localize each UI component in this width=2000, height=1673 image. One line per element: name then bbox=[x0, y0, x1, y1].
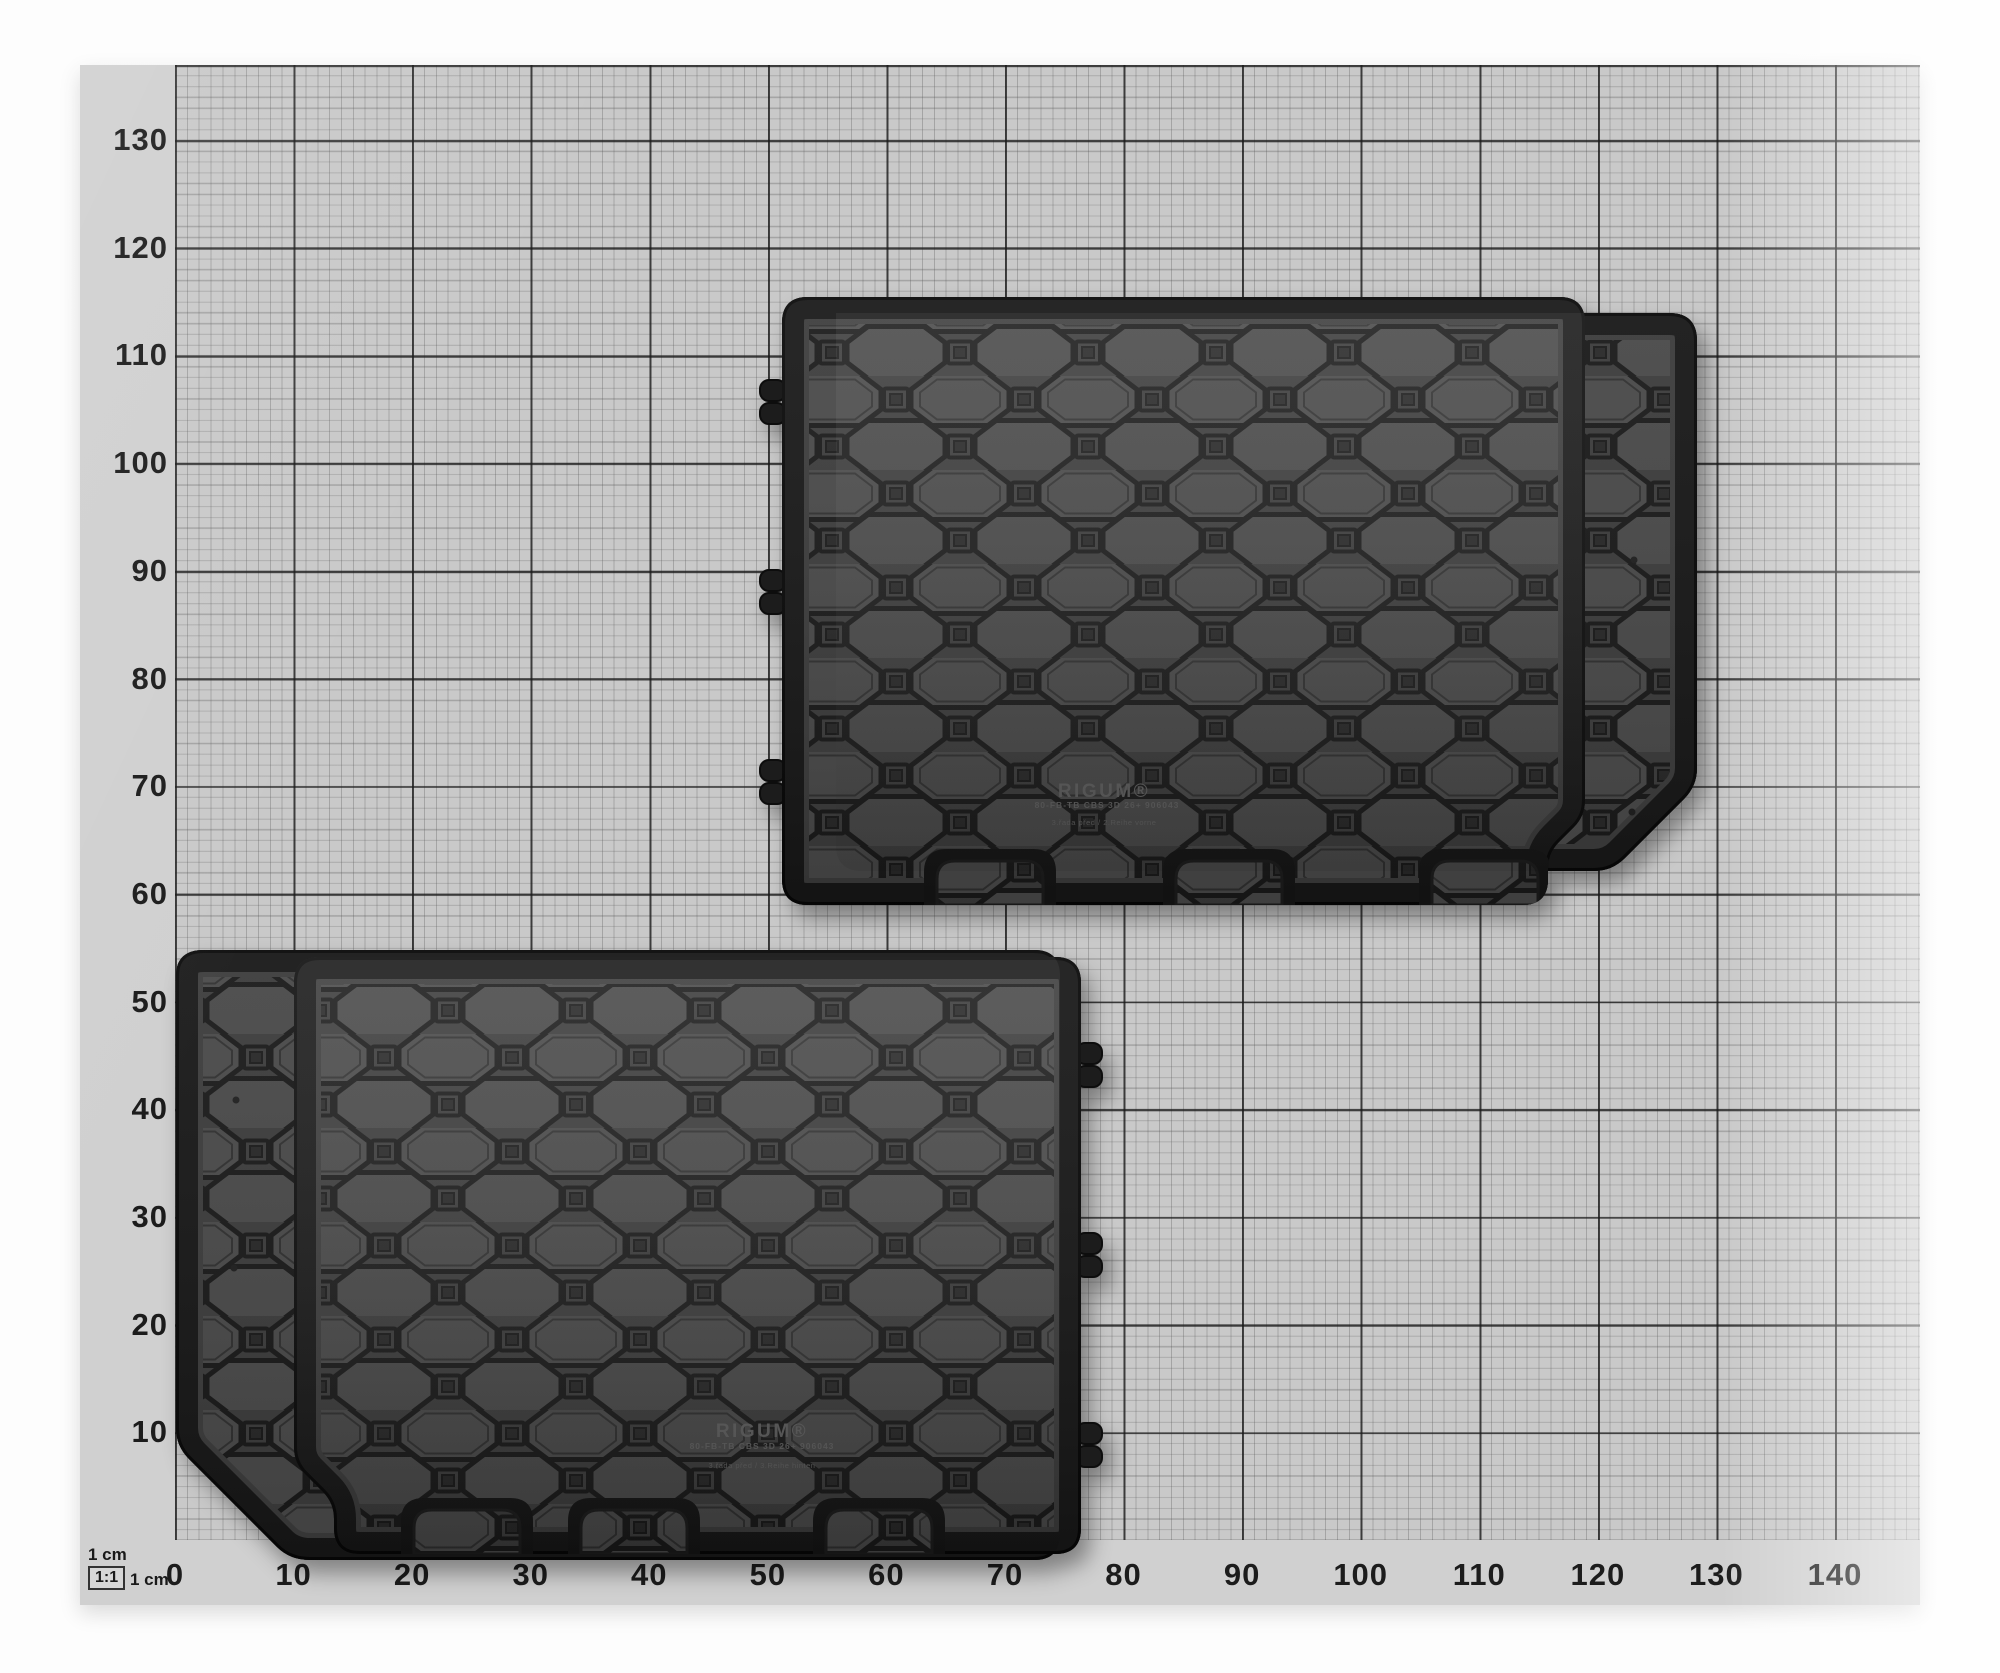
x-axis-label: 120 bbox=[1570, 1557, 1625, 1593]
y-axis-label: 80 bbox=[132, 661, 168, 697]
y-axis-label: 60 bbox=[132, 876, 168, 912]
scale-top-label: 1 cm bbox=[88, 1545, 127, 1565]
y-axis-label: 120 bbox=[113, 230, 168, 266]
y-axis-label: 90 bbox=[132, 553, 168, 589]
trunk-mat-group-bottom: RIGUM® 80-FB-TB CBS 3D 26+ 906043 3.řada… bbox=[150, 925, 1125, 1590]
y-axis-label: 70 bbox=[132, 768, 168, 804]
trunk-mat-group-top: RIGUM® 80-FB-TB CBS 3D 26+ 906043 3.řada… bbox=[740, 270, 1720, 930]
x-axis-label: 110 bbox=[1453, 1557, 1506, 1593]
scale-ratio-box: 1:1 bbox=[88, 1566, 125, 1590]
y-axis-label: 100 bbox=[113, 445, 168, 481]
x-axis-label: 130 bbox=[1689, 1557, 1744, 1593]
x-axis-label: 90 bbox=[1224, 1557, 1260, 1593]
x-axis-label: 100 bbox=[1333, 1557, 1388, 1593]
y-axis-label: 130 bbox=[113, 122, 168, 158]
x-axis-label: 140 bbox=[1808, 1557, 1863, 1593]
product-photo: 1301201101009080706050403020100102030405… bbox=[0, 0, 2000, 1673]
y-axis-label: 110 bbox=[115, 337, 168, 373]
